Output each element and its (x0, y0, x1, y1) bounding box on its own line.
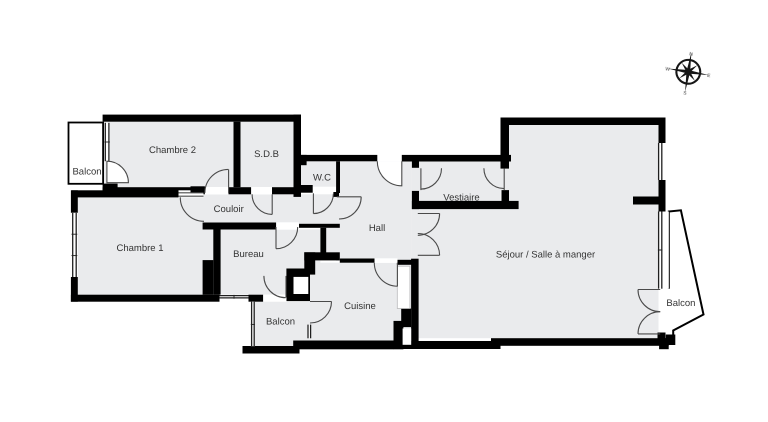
svg-text:Séjour / Salle à manger: Séjour / Salle à manger (496, 250, 595, 261)
svg-text:Hall: Hall (369, 223, 385, 234)
svg-text:Chambre 1: Chambre 1 (117, 243, 164, 254)
svg-text:Balcon: Balcon (666, 298, 695, 309)
svg-text:S.D.B: S.D.B (254, 149, 279, 160)
svg-text:Balcon: Balcon (72, 167, 101, 178)
svg-text:Bureau: Bureau (233, 249, 264, 260)
svg-text:Chambre 2: Chambre 2 (149, 145, 196, 156)
svg-text:Balcon: Balcon (266, 317, 295, 328)
svg-text:Vestiaire: Vestiaire (443, 192, 479, 203)
svg-text:Cuisine: Cuisine (344, 301, 376, 312)
svg-text:W.C: W.C (313, 173, 331, 184)
svg-text:Couloir: Couloir (214, 204, 244, 215)
